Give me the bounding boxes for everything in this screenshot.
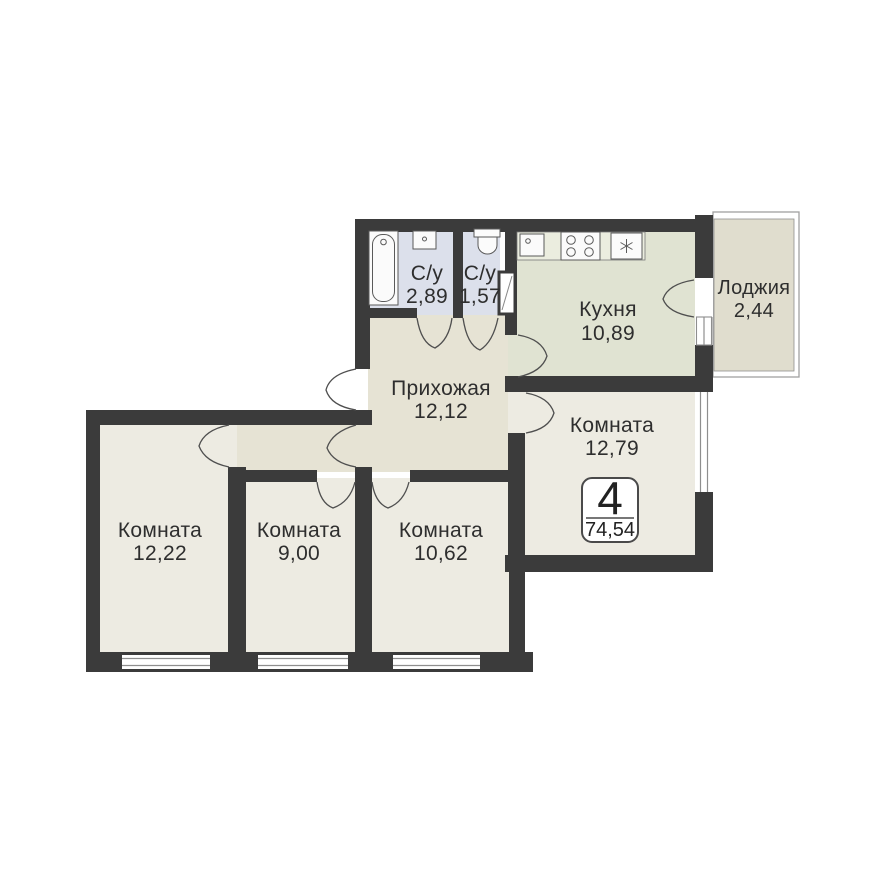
stove-icon: [561, 232, 600, 260]
wall-segment: [86, 410, 100, 672]
wall-segment: [355, 308, 417, 318]
wall-segment: [355, 219, 370, 369]
room-2-label: Комната: [118, 519, 202, 542]
unit-total-area: 74,54: [585, 519, 635, 541]
room-3-window: [258, 655, 348, 669]
room-1-area: 12,79: [585, 437, 639, 460]
floor-plan-canvas: С/у 2,89 С/у 1,57 Кухня 10,89 Лоджия 2,4…: [0, 0, 886, 886]
wall-segment: [505, 555, 713, 572]
unit-badge: 4 74,54: [582, 472, 638, 542]
room-4-floor: [370, 478, 512, 654]
wall-segment: [410, 470, 515, 482]
bathtub-icon: [369, 231, 398, 305]
kitchen-area: 10,89: [581, 322, 635, 345]
room-3-floor: [244, 478, 360, 654]
wall-segment: [228, 467, 246, 652]
toilet-icon: [474, 229, 500, 237]
wall-segment: [695, 492, 713, 572]
room-1-label: Комната: [570, 414, 654, 437]
bathroom-1-label: С/у: [411, 262, 444, 285]
unit-rooms-count: 4: [597, 472, 623, 524]
loggia-label: Лоджия: [718, 277, 791, 299]
washbasin-icon: [413, 231, 436, 249]
room-3-area: 9,00: [278, 542, 320, 565]
kitchen-label: Кухня: [579, 298, 637, 321]
room-4-area: 10,62: [414, 542, 468, 565]
bathroom-1-area: 2,89: [406, 285, 448, 308]
floor-plan: С/у 2,89 С/у 1,57 Кухня 10,89 Лоджия 2,4…: [0, 0, 886, 886]
bathroom-2-label: С/у: [464, 262, 497, 285]
room-4-window: [393, 655, 480, 669]
loggia-area: 2,44: [734, 300, 774, 322]
room-4-label: Комната: [399, 519, 483, 542]
entrance-door: [326, 369, 356, 410]
room-2-window: [122, 655, 210, 669]
wall-segment: [355, 467, 372, 652]
bathroom-2-area: 1,57: [459, 285, 501, 308]
wall-segment: [355, 219, 713, 232]
wall-segment: [695, 215, 713, 278]
kitchen-fixtures: [517, 232, 645, 260]
room-1-window: [695, 392, 713, 492]
wall-segment: [86, 410, 372, 425]
hallway-area: 12,12: [414, 400, 468, 423]
hallway-label: Прихожая: [391, 377, 491, 400]
wall-segment: [246, 470, 317, 482]
wall-segment: [508, 433, 525, 557]
kitchen-sink-icon: [520, 234, 544, 256]
room-2-area: 12,22: [133, 542, 187, 565]
balcony-door-opening: [695, 278, 713, 317]
toilet-bowl: [478, 237, 497, 254]
wall-segment: [505, 376, 713, 392]
room-3-label: Комната: [257, 519, 341, 542]
